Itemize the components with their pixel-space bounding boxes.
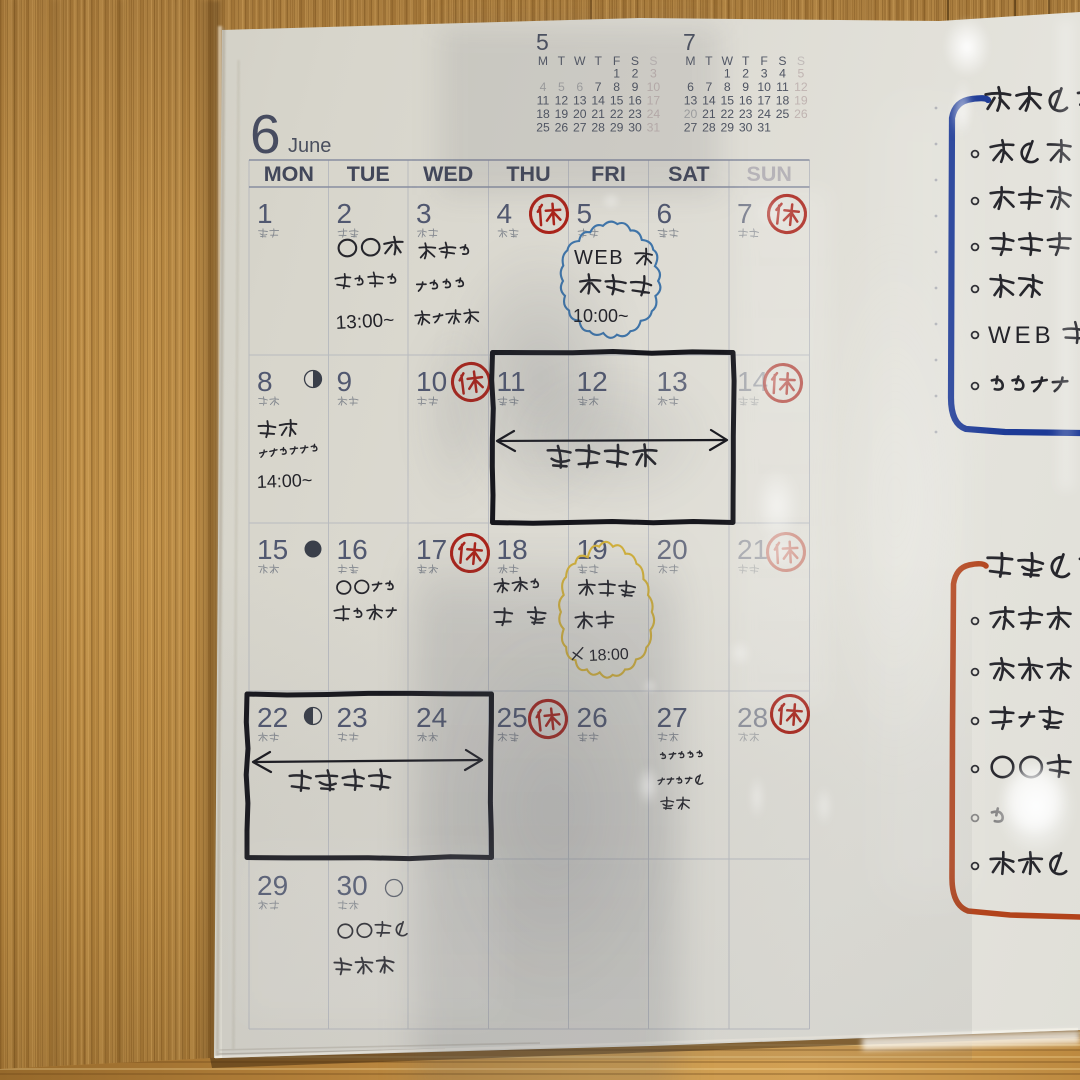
- svg-text:16: 16: [739, 94, 753, 108]
- svg-text:26: 26: [794, 107, 808, 121]
- svg-text:4: 4: [779, 67, 786, 81]
- svg-text:29: 29: [721, 121, 735, 135]
- svg-text:MON: MON: [264, 162, 314, 186]
- svg-text:SUN: SUN: [746, 162, 791, 186]
- svg-text:1: 1: [724, 67, 731, 81]
- svg-text:1: 1: [257, 198, 273, 229]
- svg-text:22: 22: [721, 107, 735, 121]
- svg-text:10: 10: [757, 80, 771, 94]
- svg-text:31: 31: [757, 121, 771, 135]
- svg-text:11: 11: [776, 80, 789, 94]
- svg-text:23: 23: [739, 107, 753, 121]
- svg-text:9: 9: [337, 366, 353, 397]
- svg-text:14:00~: 14:00~: [256, 470, 312, 492]
- svg-text:19: 19: [794, 94, 808, 108]
- svg-text:June: June: [288, 135, 331, 157]
- svg-text:25: 25: [776, 107, 790, 121]
- svg-text:8: 8: [257, 366, 273, 397]
- svg-text:30: 30: [739, 121, 753, 135]
- svg-text:2: 2: [742, 67, 749, 81]
- svg-text:15: 15: [721, 94, 735, 108]
- svg-text:5: 5: [798, 67, 805, 81]
- svg-text:WEB: WEB: [988, 322, 1055, 349]
- svg-text:24: 24: [757, 107, 771, 121]
- svg-text:8: 8: [724, 80, 731, 94]
- svg-text:6: 6: [250, 103, 281, 165]
- svg-text:9: 9: [742, 80, 749, 94]
- svg-text:13:00~: 13:00~: [335, 310, 395, 334]
- svg-text:2: 2: [337, 198, 353, 229]
- svg-text:TUE: TUE: [347, 162, 390, 186]
- svg-text:17: 17: [757, 94, 771, 108]
- svg-text:12: 12: [794, 80, 808, 94]
- svg-text:18: 18: [776, 94, 790, 108]
- svg-text:3: 3: [761, 67, 768, 81]
